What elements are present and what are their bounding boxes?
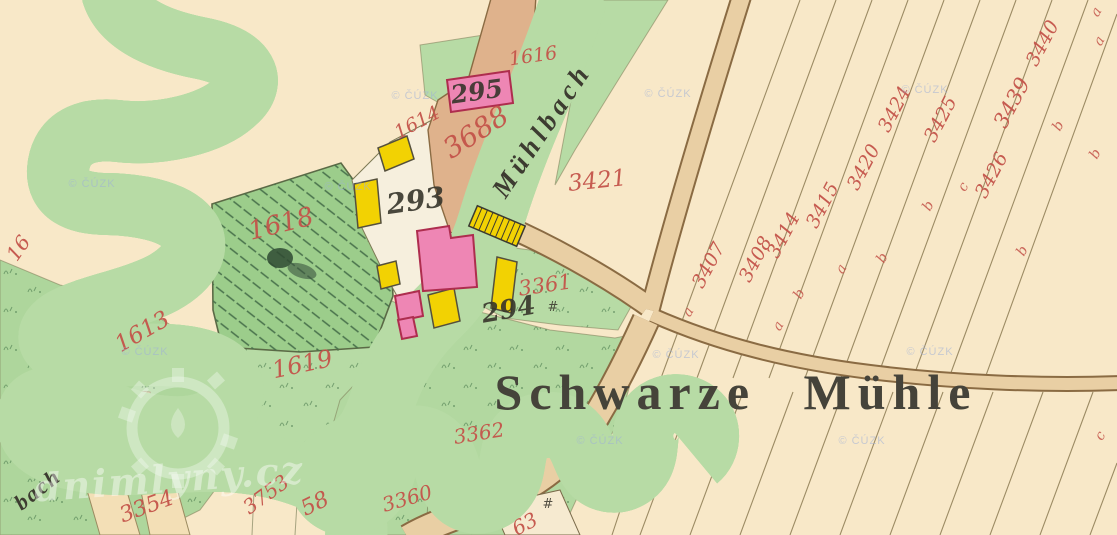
meadow-symbol-#: # [543, 497, 554, 512]
cuzk-watermark-© čúzk: © ČÚZK [901, 83, 948, 96]
mill-building [417, 226, 477, 291]
cuzk-watermark-© čúzk: © ČÚZK [391, 89, 438, 102]
building-pink-small-1 [395, 291, 423, 321]
cuzk-watermark-© čúzk: © ČÚZK [121, 345, 168, 358]
building-yellow-3 [377, 261, 400, 289]
cadastral-map-image: Schwarze Mühle Mühlbach bach 16141616368… [0, 0, 1117, 535]
cuzk-watermark-© čúzk: © ČÚZK [644, 87, 691, 100]
cuzk-watermark-© čúzk: © ČÚZK [576, 434, 623, 447]
meadow-symbol-#: # [548, 300, 559, 315]
cuzk-watermark-© čúzk: © ČÚZK [652, 348, 699, 361]
cuzk-watermark-© čúzk: © ČÚZK [906, 345, 953, 358]
building-yellow-4 [428, 288, 460, 328]
building-pink-small-2 [398, 317, 417, 339]
cuzk-watermark-© čúzk: © ČÚZK [838, 434, 885, 447]
cuzk-watermark-© čúzk: © ČÚZK [324, 180, 371, 193]
place-label-schwarze-muehle: Schwarze Mühle [495, 364, 978, 420]
cuzk-watermark-© čúzk: © ČÚZK [68, 177, 115, 190]
map-canvas[interactable]: Schwarze Mühle Mühlbach bach 16141616368… [0, 0, 1117, 535]
